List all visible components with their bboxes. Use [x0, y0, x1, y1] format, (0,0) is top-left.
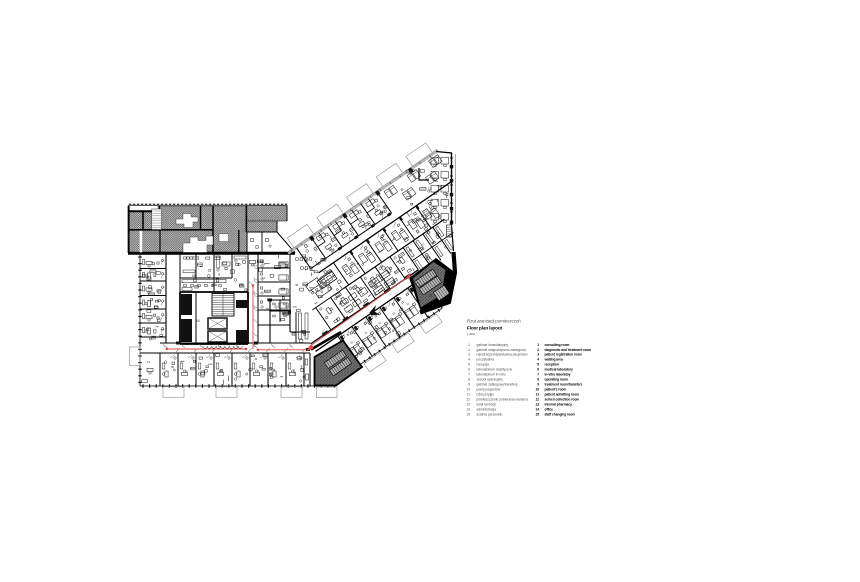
svg-text:7: 7	[537, 373, 539, 377]
svg-text:10: 10	[466, 388, 470, 392]
svg-text:2: 2	[468, 348, 470, 352]
svg-text:in-vitro laboratoy: in-vitro laboratoy	[545, 373, 571, 377]
svg-text:9: 9	[537, 383, 539, 387]
svg-text:zespół operacyjny: zespół operacyjny	[477, 378, 504, 382]
svg-text:8: 8	[468, 378, 470, 382]
svg-text:office: office	[545, 407, 554, 411]
svg-text:15: 15	[196, 319, 200, 323]
svg-text:staff changing room: staff changing room	[545, 412, 576, 416]
svg-text:waiting area: waiting area	[544, 358, 564, 362]
svg-text:Floor plan layout: Floor plan layout	[467, 326, 503, 331]
svg-text:consulting room: consulting room	[545, 343, 570, 347]
svg-text:pomieszczenie pobierania nasie: pomieszczenie pobierania nasienia	[477, 398, 528, 402]
svg-text:semen collection room: semen collection room	[545, 398, 580, 402]
svg-text:recepcja: recepcja	[477, 363, 490, 367]
svg-text:11: 11	[467, 393, 471, 397]
svg-text:4: 4	[468, 358, 470, 362]
svg-text:4: 4	[537, 358, 539, 362]
svg-text:15: 15	[535, 412, 539, 416]
svg-text:1:300: 1:300	[467, 332, 475, 336]
svg-text:9: 9	[468, 383, 470, 387]
svg-text:1: 1	[537, 343, 539, 347]
svg-text:patient's room: patient's room	[545, 388, 567, 392]
svg-text:11: 11	[536, 393, 540, 397]
svg-text:rejestracja indywidualna pacje: rejestracja indywidualna pacjentów	[477, 353, 529, 357]
svg-text:administracja: administracja	[477, 407, 497, 411]
svg-text:gabinet zabiegowy/transfery: gabinet zabiegowy/transfery	[477, 383, 518, 387]
svg-text:13: 13	[535, 402, 539, 406]
svg-text:gabinet diagnostyczno-zabiegow: gabinet diagnostyczno-zabiegowy	[477, 348, 527, 352]
svg-text:szatnia personelu: szatnia personelu	[477, 412, 503, 416]
svg-text:diagnostic and treatment room: diagnostic and treatment room	[545, 348, 592, 352]
svg-text:dział farmacji: dział farmacji	[477, 402, 497, 406]
svg-text:7: 7	[468, 373, 470, 377]
svg-text:14: 14	[466, 407, 470, 411]
svg-text:12: 12	[535, 398, 539, 402]
svg-text:laboratorium in-vitro: laboratorium in-vitro	[477, 373, 506, 377]
svg-text:10: 10	[535, 388, 539, 392]
svg-text:patient registration room: patient registration room	[545, 353, 583, 357]
svg-text:gabinet konsultacyjny: gabinet konsultacyjny	[477, 343, 509, 347]
svg-text:13: 13	[466, 402, 470, 406]
svg-text:5: 5	[468, 363, 470, 367]
svg-text:14: 14	[147, 360, 151, 364]
svg-text:2: 2	[537, 348, 539, 352]
svg-text:3: 3	[468, 353, 470, 357]
svg-text:Rzut aranżacji pomieszczeń: Rzut aranżacji pomieszczeń	[467, 319, 521, 324]
svg-text:poczekalnia: poczekalnia	[477, 358, 495, 362]
svg-text:operating room: operating room	[545, 378, 568, 382]
svg-text:pokój pacjentów: pokój pacjentów	[477, 388, 501, 392]
svg-text:treatment room/transfers: treatment room/transfers	[545, 383, 583, 387]
svg-text:3: 3	[537, 353, 539, 357]
svg-text:medical laboratory: medical laboratory	[545, 368, 573, 372]
svg-text:8: 8	[537, 378, 539, 382]
svg-text:internal pharmacy: internal pharmacy	[545, 402, 573, 406]
svg-text:izba przyjęć: izba przyjęć	[477, 393, 495, 397]
svg-text:1: 1	[468, 343, 470, 347]
svg-text:laboratorium analityczne: laboratorium analityczne	[477, 368, 513, 372]
svg-text:6: 6	[468, 368, 470, 372]
svg-text:patient admitting room: patient admitting room	[545, 393, 580, 397]
svg-text:6: 6	[537, 368, 539, 372]
svg-text:12: 12	[466, 398, 470, 402]
svg-text:reception: reception	[545, 363, 559, 367]
svg-text:14: 14	[535, 407, 539, 411]
svg-text:15: 15	[466, 412, 470, 416]
svg-text:13: 13	[262, 276, 266, 280]
svg-text:5: 5	[537, 363, 539, 367]
